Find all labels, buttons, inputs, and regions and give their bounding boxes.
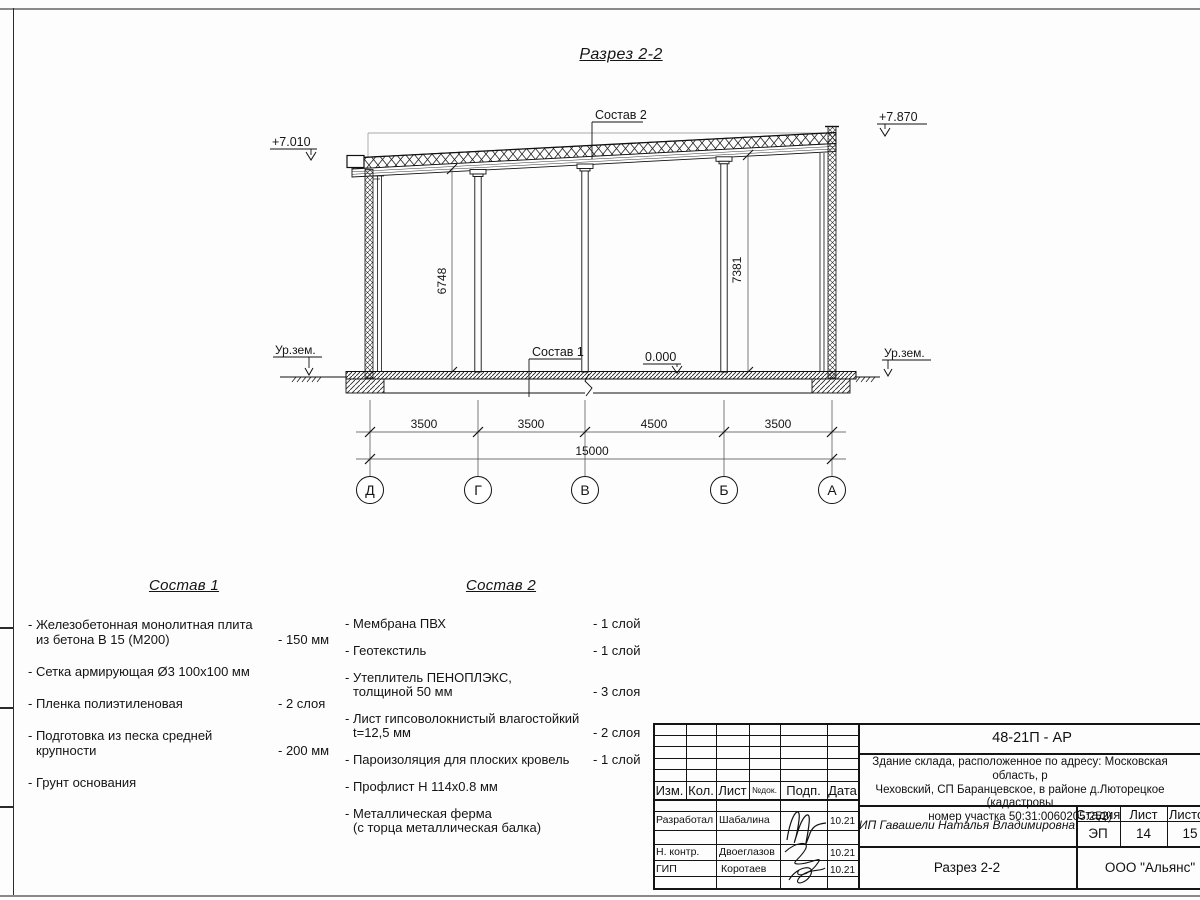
project-code: 48-21П - АР (858, 723, 1200, 753)
ground-level-mark-left: Ур.зем. (273, 343, 322, 375)
list-item: - Грунт основания (28, 775, 340, 790)
svg-text:Состав 2: Состав 2 (595, 108, 647, 122)
svg-text:3500: 3500 (411, 417, 438, 431)
rev-col-kol: Кол. (686, 782, 716, 799)
list-item: - Подготовка из песка среднейкрупности -… (28, 728, 340, 758)
level-mark-right-roof: +7.870 (877, 110, 927, 136)
dimension-chain: 3500 3500 4500 3500 15000 (356, 400, 846, 476)
svg-text:7381: 7381 (730, 256, 744, 283)
company-name: ООО "Альянс" (1076, 846, 1200, 890)
list-item: - Металлическая ферма(с торца металличес… (345, 807, 657, 835)
role-name: Шабалина (719, 813, 779, 828)
svg-text:+7.870: +7.870 (879, 110, 918, 124)
sheet-number: 14 (1120, 822, 1167, 846)
svg-text:6748: 6748 (435, 267, 449, 294)
fold-mark (0, 627, 13, 629)
svg-text:Б: Б (719, 482, 728, 498)
fold-mark (0, 806, 13, 808)
ground-line-left (280, 377, 346, 382)
rev-col-data: Дата (827, 782, 858, 799)
svg-text:3500: 3500 (518, 417, 545, 431)
signature (781, 836, 827, 888)
rev-col-izm: Изм. (653, 782, 686, 799)
sheets-label: Листов (1167, 807, 1200, 822)
role-label: Н. контр. (656, 845, 716, 860)
floor-slab (346, 372, 856, 397)
svg-text:А: А (827, 482, 837, 498)
svg-text:3500: 3500 (765, 417, 792, 431)
composition-1-title: Состав 1 (28, 577, 340, 594)
composition-2-list: Состав 2 - Мембрана ПВХ - 1 слой - Геоте… (345, 577, 657, 848)
role-date: 10.21 (827, 814, 858, 829)
vertical-dimension-right: 7381 (730, 150, 753, 377)
svg-text:4500: 4500 (641, 417, 668, 431)
roof-truss (347, 133, 836, 178)
roof-overhang (347, 156, 364, 168)
rev-col-podp: Подп. (780, 782, 827, 799)
list-item: - Пароизоляция для плоских кровель - 1 с… (345, 753, 657, 767)
sheet-label: Лист (1120, 807, 1167, 822)
stage-label: Стадия (1076, 807, 1120, 822)
svg-text:+7.010: +7.010 (272, 135, 311, 149)
level-arrow-icon (305, 368, 313, 375)
ground-level-mark-right: Ур.зем. (882, 346, 931, 376)
role-date: 10.21 (827, 846, 858, 861)
stage-value: ЭП (1076, 822, 1120, 846)
rev-col-ndok: №док. (749, 782, 780, 799)
list-item: - Мембрана ПВХ - 1 слой (345, 617, 657, 631)
svg-text:0.000: 0.000 (645, 350, 676, 364)
composition-2-title: Состав 2 (345, 577, 657, 594)
role-label: ГИП (656, 862, 716, 877)
role-label: Разработал (656, 813, 716, 828)
level-arrow-icon (880, 128, 890, 136)
client-name: ИП Гавашели Наталья Владимировна (858, 818, 1076, 832)
level-mark-left-roof: +7.010 (270, 135, 317, 160)
list-item: - Железобетонная монолитная плитаиз бето… (28, 617, 340, 647)
document-title: Разрез 2-2 (858, 846, 1076, 890)
title-block: Изм. Кол. Лист №док. Подп. Дата Разработ… (653, 723, 1200, 890)
ground-line-right (856, 377, 880, 382)
columns (470, 157, 732, 372)
list-item: - Профлист Н 114х0.8 мм (345, 780, 657, 794)
rev-col-list: Лист (716, 782, 749, 799)
level-mark-floor: 0.000 (643, 350, 682, 373)
svg-text:Состав 1: Состав 1 (532, 345, 584, 359)
role-name: Двоеглазов (719, 845, 779, 860)
svg-text:Ур.зем.: Ур.зем. (884, 346, 925, 360)
section-drawing: +7.010 +7.870 0.000 Ур.зем. Ур.зем. (0, 0, 1200, 570)
vertical-dimension-left: 6748 (435, 164, 457, 377)
sheets-total: 15 (1167, 822, 1200, 846)
list-item: - Лист гипсоволокнистый влагостойкийt=12… (345, 712, 657, 740)
right-wall (820, 127, 839, 379)
list-item: - Геотекстиль - 1 слой (345, 644, 657, 658)
composition-1-list: Состав 1 - Железобетонная монолитная пли… (28, 577, 340, 807)
svg-text:Д: Д (365, 482, 375, 498)
role-date: 10.21 (827, 863, 858, 878)
list-item: - Пленка полиэтиленовая - 2 слоя (28, 696, 340, 711)
svg-text:15000: 15000 (575, 444, 609, 458)
left-wall (365, 170, 384, 379)
level-arrow-icon (884, 369, 892, 376)
axis-bubbles: Д Г В Б А (357, 477, 846, 504)
frame-bottom (0, 895, 1200, 897)
list-item: - Утеплитель ПЕНОПЛЭКС,толщиной 50 мм - … (345, 671, 657, 699)
svg-text:Ур.зем.: Ур.зем. (275, 343, 316, 357)
fold-mark (0, 707, 13, 709)
role-name: Коротаев (721, 862, 781, 877)
svg-text:Г: Г (474, 482, 482, 498)
list-item: - Сетка армирующая Ø3 100х100 мм (28, 664, 340, 679)
svg-text:В: В (580, 482, 589, 498)
drawing-sheet: Разрез 2-2 (0, 0, 1200, 900)
